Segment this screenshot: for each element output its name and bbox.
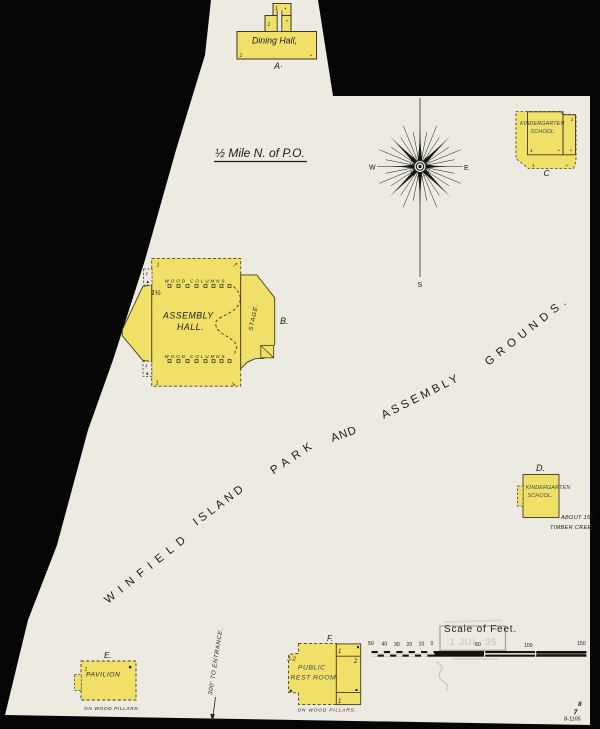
svg-text:1½: 1½ [151,289,161,297]
svg-text:TIMBER CREE: TIMBER CREE [550,525,592,531]
svg-text:▲: ▲ [145,371,149,376]
svg-text:KINDERGARTEN: KINDERGARTEN [526,485,571,491]
svg-text:C: C [544,168,551,178]
svg-text:▲: ▲ [146,279,150,284]
svg-text:WOOD COLUMNS.: WOOD COLUMNS. [165,279,230,284]
svg-text:100: 100 [524,643,533,649]
svg-text:E.: E. [104,651,112,660]
svg-text:1: 1 [156,381,159,387]
svg-text:1: 1 [530,148,533,154]
svg-text:50: 50 [368,641,374,647]
svg-text:ABOUT 150': ABOUT 150' [560,515,596,521]
svg-text:1: 1 [268,22,271,28]
svg-text:PUBLIC: PUBLIC [298,665,326,672]
svg-text:8-1105: 8-1105 [564,717,582,723]
svg-text:1: 1 [338,649,341,655]
svg-text:1: 1 [240,53,243,59]
svg-text:2: 2 [353,659,358,665]
svg-text:150: 150 [577,641,586,647]
svg-text:'1 JUL :35: '1 JUL :35 [447,637,497,648]
svg-text:SCHOOL.: SCHOOL. [531,129,556,135]
svg-text:↘: ↘ [231,382,236,388]
svg-text:8: 8 [578,701,582,708]
svg-text:ON WOOD PILLARS.: ON WOOD PILLARS. [298,708,357,714]
svg-text:1: 1 [532,163,535,169]
svg-text:1: 1 [85,667,88,673]
svg-text:HALL.: HALL. [177,322,204,332]
svg-text:D.: D. [536,463,545,473]
svg-text:•: • [285,6,287,12]
svg-text:1: 1 [571,117,574,123]
svg-text:ASSEMBLY: ASSEMBLY [162,311,214,321]
svg-text:PAVILION: PAVILION [86,672,120,679]
svg-text:E: E [464,165,469,172]
svg-text:REST ROOM.: REST ROOM. [291,675,339,682]
svg-text:30: 30 [394,642,400,648]
svg-text:ON WOOD PILLARS:: ON WOOD PILLARS: [84,706,140,712]
svg-text:½ Mile N. of P.O.: ½ Mile N. of P.O. [215,146,305,160]
svg-text:F.: F. [327,634,333,643]
svg-text:40: 40 [382,642,388,648]
svg-text:10: 10 [419,642,425,648]
svg-text:•: • [310,53,312,59]
svg-text:1: 1 [275,6,278,12]
svg-text:WOOD COLUMNS.: WOOD COLUMNS. [165,354,230,359]
svg-text:■: ■ [129,665,132,671]
svg-text:A·: A· [273,61,283,71]
svg-text:B.: B. [280,316,289,326]
svg-text:S: S [418,282,423,289]
svg-text:W: W [369,165,376,172]
svg-text:•: • [286,19,288,25]
svg-text:Dining Hall,: Dining Hall, [252,36,297,46]
svg-text:J-2: J-2 [286,656,296,663]
svg-text:50: 50 [475,642,481,648]
svg-text:0: 0 [431,641,434,647]
svg-text:20: 20 [407,642,413,648]
svg-text:1: 1 [338,699,341,705]
svg-text:↗: ↗ [233,263,238,269]
svg-text:1: 1 [157,263,160,269]
svg-text:KINDERGARTEN: KINDERGARTEN [520,121,565,127]
svg-text:SCHOOL.: SCHOOL. [528,493,553,499]
